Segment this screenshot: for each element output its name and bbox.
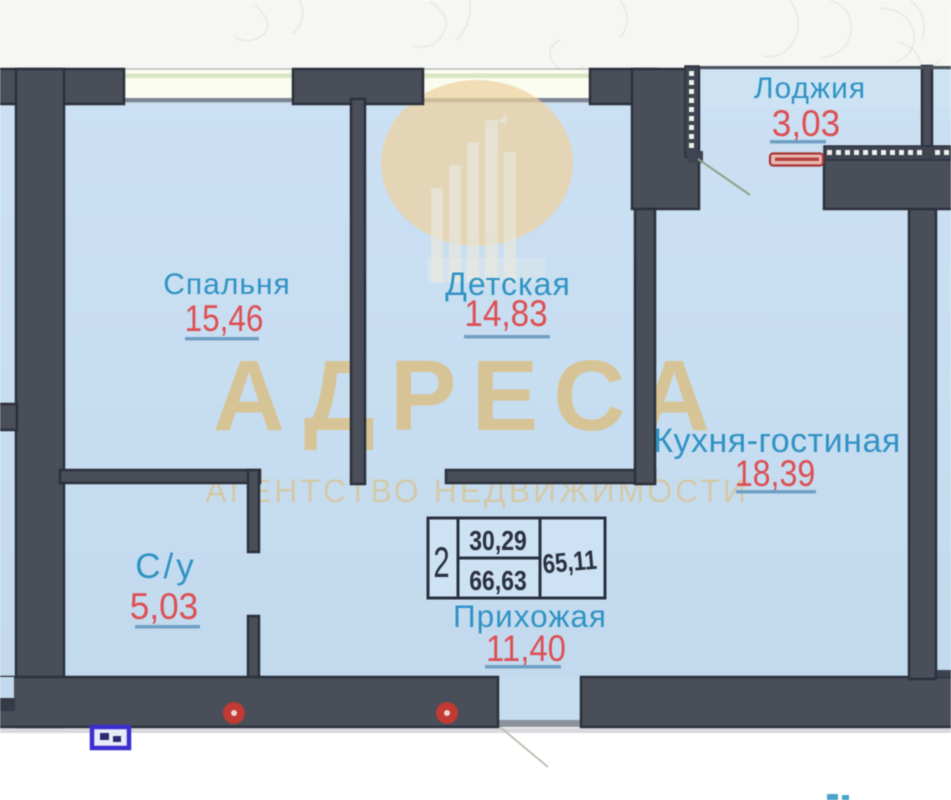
svg-text:11,40: 11,40	[486, 628, 566, 669]
svg-text:18,39: 18,39	[735, 454, 816, 495]
svg-text:14,83: 14,83	[464, 293, 547, 334]
svg-text:5,03: 5,03	[130, 585, 198, 627]
svg-text:2: 2	[433, 538, 449, 586]
svg-text:15,46: 15,46	[185, 299, 264, 340]
svg-text:65,11: 65,11	[542, 546, 599, 580]
svg-text:Спальня: Спальня	[163, 268, 291, 301]
svg-text:С/у: С/у	[135, 547, 197, 586]
svg-text:66,63: 66,63	[469, 566, 526, 597]
svg-text:Лоджия: Лоджия	[754, 72, 866, 105]
svg-text:30,29: 30,29	[469, 526, 526, 557]
svg-text:3,03: 3,03	[772, 102, 840, 144]
